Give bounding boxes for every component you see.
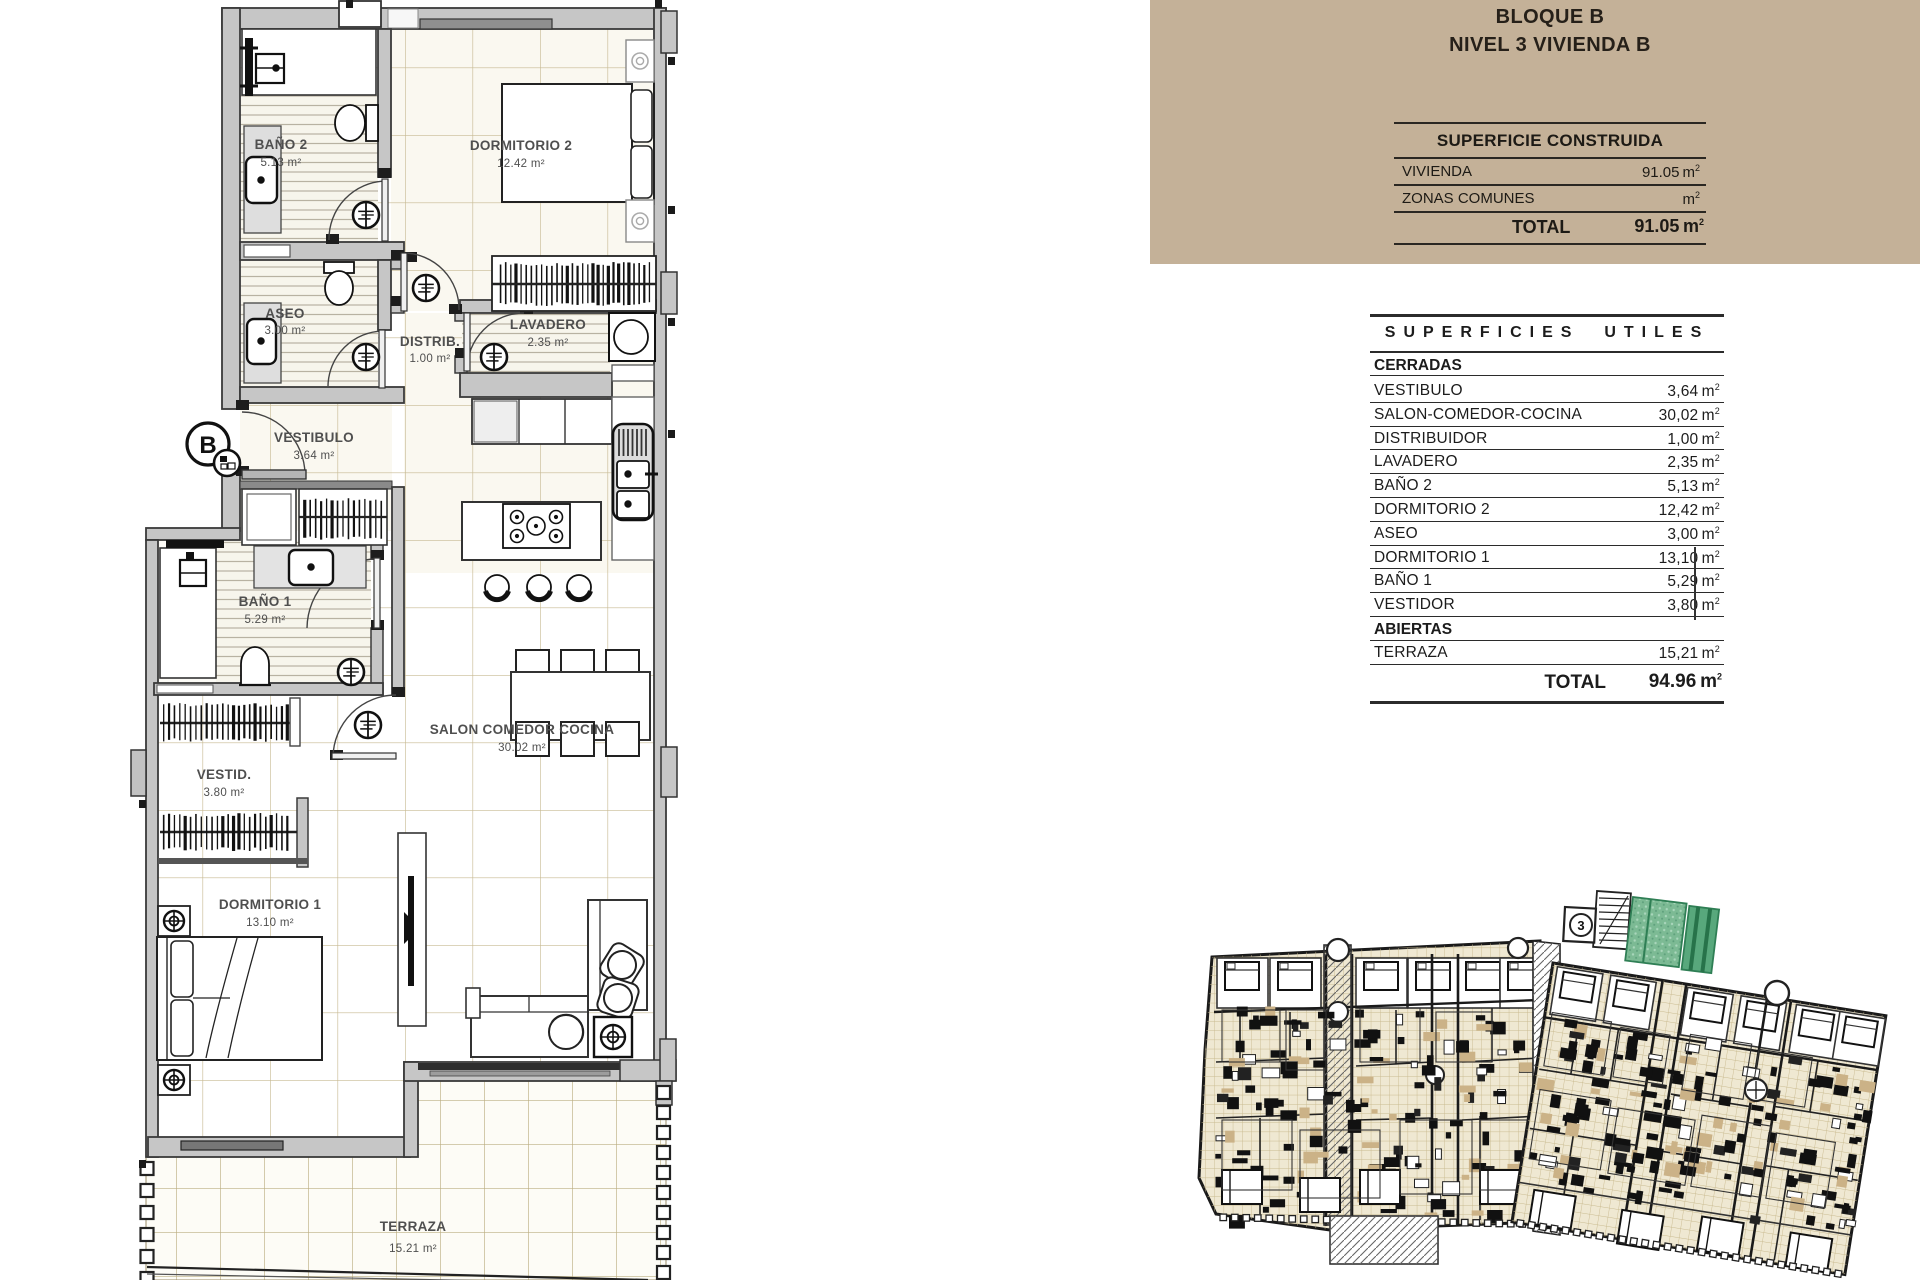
svg-text:BAÑO 2: BAÑO 2 [255, 137, 308, 152]
svg-text:VESTID.: VESTID. [197, 767, 252, 782]
svg-text:SALON COMEDOR COCINA: SALON COMEDOR COCINA [430, 722, 615, 737]
svg-text:30.02 m²: 30.02 m² [498, 742, 546, 754]
svg-text:1.00 m²: 1.00 m² [409, 353, 450, 365]
svg-text:5.13 m²: 5.13 m² [260, 157, 301, 169]
svg-text:ASEO: ASEO [265, 306, 304, 321]
svg-text:3: 3 [1577, 918, 1584, 933]
svg-text:3.00 m²: 3.00 m² [264, 325, 305, 337]
svg-text:12.42 m²: 12.42 m² [497, 158, 545, 170]
svg-text:DISTRIB.: DISTRIB. [400, 334, 460, 349]
svg-text:DORMITORIO 2: DORMITORIO 2 [470, 138, 572, 153]
svg-text:DORMITORIO 1: DORMITORIO 1 [219, 897, 322, 912]
svg-text:LAVADERO: LAVADERO [510, 317, 586, 332]
svg-text:13.10 m²: 13.10 m² [246, 917, 294, 929]
svg-text:BAÑO 1: BAÑO 1 [239, 594, 292, 609]
svg-text:2.35 m²: 2.35 m² [527, 337, 568, 349]
svg-text:VESTIBULO: VESTIBULO [274, 430, 354, 445]
svg-text:15.21 m²: 15.21 m² [389, 1243, 437, 1255]
svg-text:3.64 m²: 3.64 m² [293, 450, 334, 462]
svg-text:TERRAZA: TERRAZA [380, 1219, 447, 1234]
svg-text:5.29 m²: 5.29 m² [244, 614, 285, 626]
svg-text:B: B [199, 432, 216, 459]
svg-text:3.80 m²: 3.80 m² [203, 787, 244, 799]
